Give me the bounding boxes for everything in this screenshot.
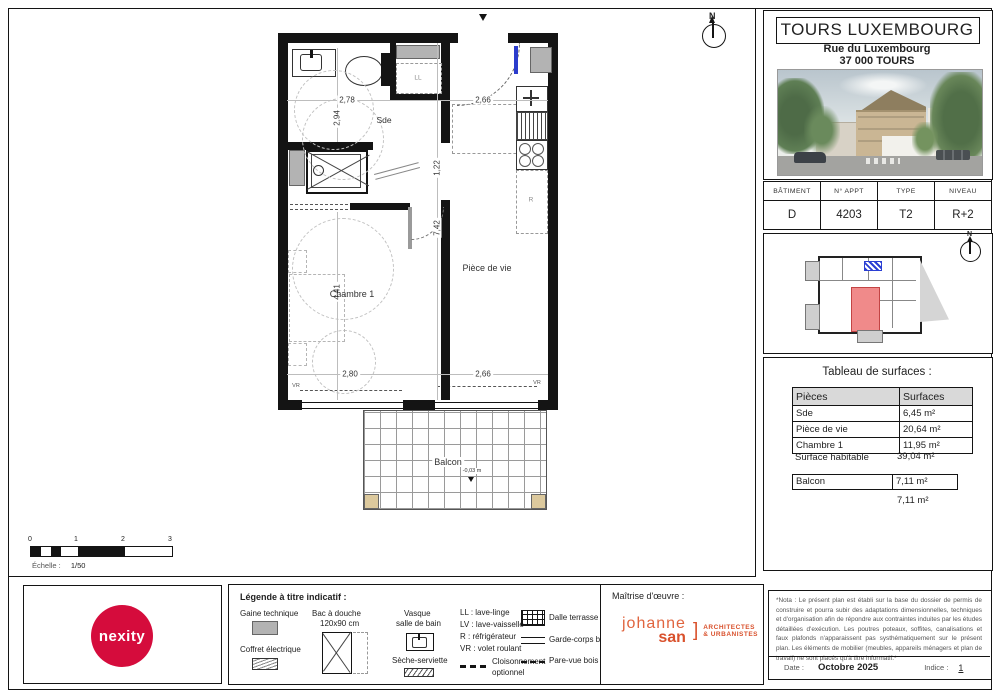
architect-logo-sub2: & URBANISTES [703, 631, 758, 638]
scale-seg [61, 547, 78, 556]
photo-crosswalk [866, 158, 900, 164]
dim-sde-width: 2,78 [337, 96, 357, 105]
north-needle-head [709, 16, 715, 23]
legend-cloison-label2: optionnel [492, 668, 524, 677]
key-plan-unit-highlight [851, 287, 880, 332]
legend-dalle-label: Dalle terrasse [549, 613, 598, 622]
project-title: TOURS LUXEMBOURG [781, 20, 974, 40]
wall-chambre-north [350, 203, 410, 210]
surfaces-title: Tableau de surfaces : [822, 366, 931, 378]
key-plan-north-icon [960, 241, 981, 262]
project-address-2: 37 000 TOURS [839, 55, 914, 67]
architect-logo-line2: san [658, 629, 686, 647]
key-plan-balcony [805, 304, 820, 330]
nota-text: *Nota : Le présent plan est établi sur l… [776, 596, 982, 663]
scale-seg [51, 547, 61, 556]
scale-tick-3: 3 [168, 536, 172, 543]
indice-label: Indice : [924, 663, 948, 672]
gaine-technique-block [530, 47, 552, 73]
info-header-batiment: BÂTIMENT [764, 182, 821, 201]
cooktop-burner [532, 143, 544, 155]
room-label-chambre: Chambre 1 [330, 289, 375, 299]
balcon-label: Balcon [793, 475, 893, 489]
vasque-tap [310, 50, 313, 58]
kitchen-sink-cross [523, 97, 539, 99]
legend-ll-label: LL : lave-linge [460, 608, 510, 617]
dim-sde-height: 2,94 [333, 108, 342, 128]
plan-sheet: VR VR LL R [0, 0, 1000, 697]
legend-r-label: R : réfrigérateur [460, 632, 516, 641]
info-value-batiment: D [764, 201, 821, 230]
balcon-row: Balcon 7,11 m² [792, 474, 958, 490]
garde-corps-icon [521, 637, 545, 644]
scale-label: Échelle : [32, 561, 61, 570]
scale-seg [78, 547, 125, 556]
dim-line [337, 212, 338, 400]
window-chambre [302, 402, 403, 409]
vr-dashed-right [437, 386, 537, 388]
legend-bac-label1: Bac à douche [312, 609, 361, 618]
scale-caption: Échelle : 1/50 [32, 561, 85, 570]
scale-tick-0: 0 [28, 536, 32, 543]
bac-a-douche-dash-ext [353, 632, 368, 674]
key-plan-north-head [967, 236, 973, 242]
electrical-panel [514, 46, 518, 74]
info-value-niveau: R+2 [935, 201, 992, 230]
north-needle [712, 22, 714, 38]
room-label-sde: Sde [376, 115, 391, 125]
info-header-row: BÂTIMENT N° APPT TYPE NIVEAU [764, 182, 992, 201]
info-header-type: TYPE [878, 182, 935, 201]
ll-label: LL [414, 75, 421, 82]
room-label-piece: Pièce de vie [462, 263, 511, 273]
level-label: -0,03 m [462, 468, 483, 474]
gaine-technique-block [396, 45, 440, 59]
dim-hall: 1,22 [433, 158, 442, 178]
vasque-legend-tap [418, 634, 420, 640]
date-label: Date : [784, 663, 804, 672]
key-plan-unit-balcony [857, 330, 883, 343]
photo-tree [804, 106, 840, 154]
surfaces-row-surface: 20,64 m² [900, 422, 973, 438]
legend-lv-label: LV : lave-vaisselle [460, 620, 524, 629]
vr-label-right: VR [533, 380, 541, 386]
project-address-1: Rue du Luxembourg [824, 43, 931, 55]
seche-serviette-icon [404, 668, 434, 677]
surfaces-header-row: Pièces Surfaces [793, 388, 973, 406]
dim-piece-height: 7,42 [433, 218, 442, 238]
scale-tick-2: 2 [121, 536, 125, 543]
cooktop-burner [532, 155, 544, 167]
dim-chambre-width: 2,80 [340, 370, 360, 379]
key-plan-balcony [805, 261, 820, 281]
coffret-electrique-icon [252, 658, 278, 670]
surfaces-row-piece: Sde [793, 406, 900, 422]
info-header-niveau: NIVEAU [935, 182, 992, 201]
legend-vasque-label1: Vasque [404, 609, 431, 618]
level-marker-icon [468, 477, 474, 482]
legend-pare-label: Pare-vue bois [549, 656, 598, 665]
info-value-appt: 4203 [821, 201, 878, 230]
scale-tick-1: 1 [74, 536, 78, 543]
cooktop-burner [519, 143, 531, 155]
info-value-row: D 4203 T2 R+2 [764, 201, 992, 230]
legend-gaine-label: Gaine technique [240, 609, 298, 618]
legend-vr-label: VR : volet roulant [460, 644, 521, 653]
pare-vue-icon [521, 661, 545, 663]
project-photo [777, 69, 983, 176]
cooktop-burner [519, 155, 531, 167]
nightstand-outline [288, 250, 307, 273]
architect-logo: johanne san ] ARCHITECTES & URBANISTES [622, 615, 758, 647]
dim-piece-width: 2,66 [473, 370, 493, 379]
balcon-value: 7,11 m² [893, 475, 931, 489]
habitable-label: Surface habitable [795, 452, 869, 463]
nota-date-row: Date : Octobre 2025 Indice : 1 [768, 656, 990, 678]
optional-partition-dashed [290, 204, 348, 210]
habitable-value: 39,04 m² [897, 451, 935, 462]
surfaces-row: Pièce de vie 20,64 m² [793, 422, 973, 438]
nexity-logo: nexity [91, 605, 153, 667]
info-value-type: T2 [878, 201, 935, 230]
surfaces-col-surfaces: Surfaces [900, 388, 973, 406]
key-plan-north-needle [969, 240, 971, 254]
surfaces-row-surface: 6,45 m² [900, 406, 973, 422]
vr-label-left: VR [292, 383, 300, 389]
north-arrow-icon [702, 24, 726, 48]
turning-circle [302, 98, 384, 180]
wall-interior [441, 200, 450, 400]
entrance-marker-icon [479, 14, 487, 21]
dim-line [287, 374, 548, 375]
gaine-technique-icon [252, 621, 278, 635]
balcon-total: 7,11 m² [897, 495, 929, 506]
kitchen-sink [516, 86, 548, 112]
surfaces-table: Pièces Surfaces Sde 6,45 m² Pièce de vie… [792, 387, 973, 454]
cloisonnement-icon [460, 665, 486, 668]
photo-bins [936, 150, 970, 160]
apartment-info-table: BÂTIMENT N° APPT TYPE NIVEAU D 4203 T2 R… [763, 181, 992, 230]
key-plan-line [820, 280, 916, 281]
key-plan-line [892, 258, 893, 328]
key-plan-line [842, 258, 843, 280]
scale-value: 1/50 [71, 561, 86, 570]
wall [403, 400, 435, 410]
indice-value: 1 [958, 663, 963, 673]
window-piece-de-vie [435, 402, 538, 409]
kitchen-drainer [516, 112, 548, 140]
scale-seg [31, 547, 41, 556]
info-header-appt: N° APPT [821, 182, 878, 201]
maitrise-title: Maîtrise d'œuvre : [612, 591, 684, 601]
wall-interior [441, 43, 450, 143]
photo-tree [912, 122, 938, 156]
key-plan-line [880, 300, 916, 301]
legend-seche-label: Sèche-serviette [392, 656, 448, 665]
gaine-technique-block [289, 150, 305, 186]
nightstand-outline [288, 343, 307, 366]
wall [538, 400, 558, 410]
date-value: Octobre 2025 [818, 662, 878, 673]
balcony-post [531, 494, 546, 509]
architect-logo-sub1: ARCHITECTES [703, 624, 758, 631]
photo-car [794, 152, 826, 163]
room-label-balcon: Balcon [432, 457, 464, 467]
dim-entry-width: 2,66 [473, 96, 493, 105]
legend-title: Légende à titre indicatif : [240, 592, 347, 602]
nexity-logo-text: nexity [99, 628, 145, 645]
balcony-post [364, 494, 379, 509]
architect-logo-bracket: ] [693, 620, 698, 642]
surfaces-col-pieces: Pièces [793, 388, 900, 406]
photo-cloud [838, 72, 928, 98]
legend-vasque-label2: salle de bain [396, 619, 441, 628]
wall [278, 400, 302, 410]
scale-seg [41, 547, 51, 556]
legend-bac-label2: 120x90 cm [320, 619, 359, 628]
scale-seg [124, 547, 172, 556]
wall [548, 33, 558, 410]
surfaces-row: Sde 6,45 m² [793, 406, 973, 422]
dalle-terrasse-icon [521, 610, 545, 626]
surfaces-row-piece: Pièce de vie [793, 422, 900, 438]
dim-line [287, 100, 548, 101]
fridge-label: R [529, 197, 534, 204]
scale-bar [30, 546, 173, 557]
key-plan-stairs [864, 261, 882, 271]
wall [278, 33, 458, 43]
toilet-tank [381, 53, 392, 86]
wall [278, 33, 288, 410]
legend-coffret-label: Coffret électrique [240, 645, 301, 654]
